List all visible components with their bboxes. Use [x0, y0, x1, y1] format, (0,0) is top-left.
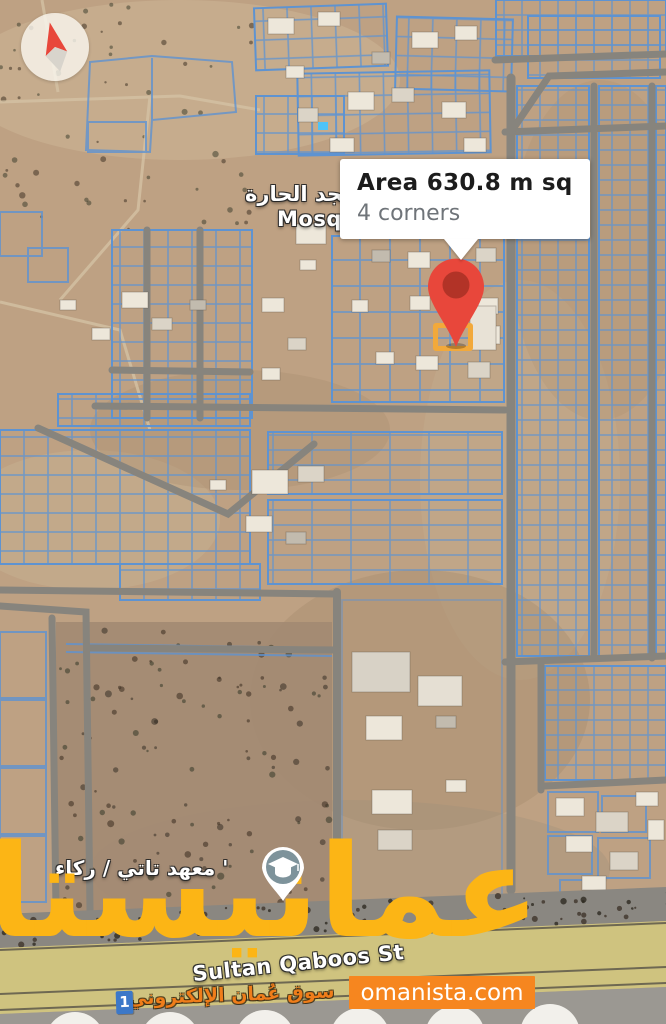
route-number-badge: 1	[116, 991, 134, 1015]
area-value: Area 630.8 m sq	[357, 170, 573, 196]
watermark-brand: عمانيستا	[88, 818, 540, 968]
compass-needle	[22, 14, 88, 80]
school-poi-icon[interactable]	[257, 840, 309, 902]
map-measure-app: مسجد الحارة Mosque Area 630.8 m sq 4 cor…	[0, 0, 666, 1024]
compass-icon[interactable]	[21, 13, 89, 81]
area-callout: Area 630.8 m sq 4 corners	[340, 159, 590, 239]
site-url-banner: omanista.com	[349, 976, 535, 1009]
map-pin[interactable]	[425, 255, 487, 350]
corners-count: 4 corners	[357, 201, 573, 226]
callout-pointer	[444, 239, 478, 260]
